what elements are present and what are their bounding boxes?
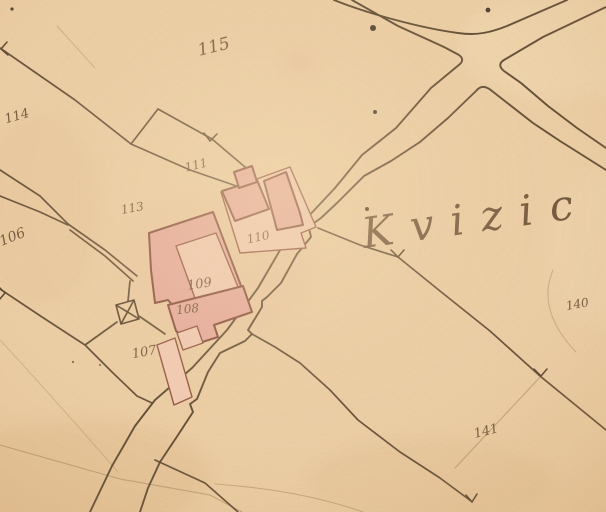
paper-vignette — [0, 0, 606, 512]
map-viewport: 115 114 111 113 106 110 109 108 107 140 … — [0, 0, 606, 512]
cadastral-map-canvas: 115 114 111 113 106 110 109 108 107 140 … — [0, 0, 606, 512]
